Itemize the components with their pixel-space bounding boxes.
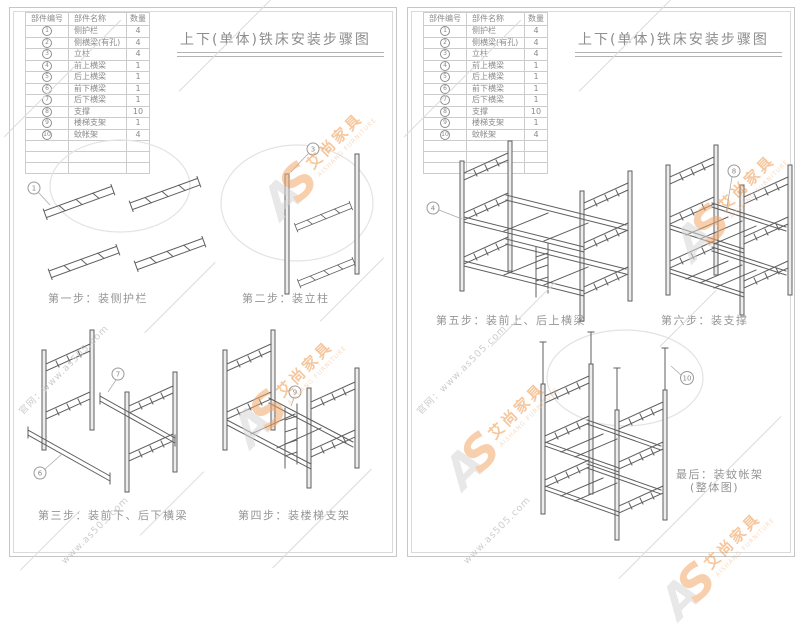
caption-final-line2: (整体图)	[690, 479, 739, 495]
part-qty: 4	[525, 49, 548, 61]
part-qty: 1	[127, 118, 150, 130]
sheet-left: 部件编号 部件名称 数量 1 侧护栏 4 2 侧横梁(有孔) 4 3 立柱 4 …	[9, 7, 397, 557]
part-qty: 1	[127, 72, 150, 84]
part-no: 1	[424, 26, 467, 38]
diagram-final-net-frame: 10	[513, 326, 705, 538]
part-name: 侧护栏	[69, 26, 127, 38]
part-qty: 4	[127, 129, 150, 141]
diagram-step5-upper-beams: 4	[418, 151, 656, 317]
part-qty: 10	[525, 106, 548, 118]
svg-text:3: 3	[311, 146, 315, 154]
part-qty: 4	[525, 129, 548, 141]
caption-step2: 第二步：装立柱	[242, 290, 330, 306]
table-row: 7 后下横梁 1	[26, 95, 150, 107]
callout-step6: 8	[726, 165, 740, 213]
part-name: 后下横梁	[467, 95, 525, 107]
caption-step3: 第三步：装前下、后下横梁	[38, 507, 188, 523]
caption-step6: 第六步：装支撑	[661, 312, 749, 328]
svg-text:9: 9	[293, 389, 297, 397]
caption-step1: 第一步：装侧护栏	[48, 290, 148, 306]
table-row: 9 楼梯支架 1	[424, 118, 548, 130]
part-qty: 1	[525, 83, 548, 95]
title-underline	[575, 52, 782, 57]
table-row: 3 立柱 4	[26, 49, 150, 61]
part-name: 侧横梁(有孔)	[467, 37, 525, 49]
part-no: 4	[424, 60, 467, 72]
table-row: 8 支撑 10	[26, 106, 150, 118]
part-qty: 4	[127, 49, 150, 61]
table-row: 7 后下横梁 1	[424, 95, 548, 107]
part-name: 支撑	[467, 106, 525, 118]
parts-header-name: 部件名称	[467, 13, 525, 26]
table-row: 8 支撑 10	[424, 106, 548, 118]
callout-step5: 4	[427, 202, 462, 219]
part-qty: 1	[525, 95, 548, 107]
part-name: 侧横梁(有孔)	[69, 37, 127, 49]
part-no: 2	[26, 37, 69, 49]
table-row: 2 侧横梁(有孔) 4	[424, 37, 548, 49]
callout-step4: 9	[289, 386, 301, 406]
diagram-step4-ladder: 9	[215, 328, 397, 506]
callout-step3-front: 6	[34, 454, 62, 479]
table-row: 9 楼梯支架 1	[26, 118, 150, 130]
table-row: 10 蚊帐架 4	[26, 129, 150, 141]
table-row: 10 蚊帐架 4	[424, 129, 548, 141]
part-no: 3	[26, 49, 69, 61]
part-name: 后上横梁	[69, 72, 127, 84]
page-title: 上下(单体)铁床安装步骤图	[578, 29, 788, 49]
parts-header-no: 部件编号	[424, 13, 467, 26]
part-no: 5	[424, 72, 467, 84]
svg-text:6: 6	[38, 470, 43, 478]
part-name: 前上横梁	[467, 60, 525, 72]
table-row: 1 侧护栏 4	[26, 26, 150, 38]
caption-step4: 第四步：装楼梯支架	[238, 507, 351, 523]
part-no: 2	[424, 37, 467, 49]
part-name: 楼梯支架	[69, 118, 127, 130]
part-name: 立柱	[467, 49, 525, 61]
part-name: 支撑	[69, 106, 127, 118]
diagram-step3-lower-beams: 7 6	[20, 328, 215, 506]
parts-header-name: 部件名称	[69, 13, 127, 26]
part-name: 后下横梁	[69, 95, 127, 107]
table-row: 6 前下横梁 1	[26, 83, 150, 95]
part-qty: 1	[525, 72, 548, 84]
caption-step5: 第五步：装前上、后上横梁	[436, 312, 586, 328]
svg-text:10: 10	[683, 375, 692, 383]
assembly-instruction-sheet: { "document": { "title": "上下(单体)铁床安装步骤图"…	[0, 0, 800, 566]
table-row: 6 前下横梁 1	[424, 83, 548, 95]
part-name: 立柱	[69, 49, 127, 61]
svg-text:8: 8	[732, 168, 736, 176]
part-qty: 4	[525, 26, 548, 38]
part-name: 前上横梁	[69, 60, 127, 72]
table-row: 2 侧横梁(有孔) 4	[26, 37, 150, 49]
diagram-step2-posts: 3	[215, 141, 395, 308]
table-row: 5 后上横梁 1	[26, 72, 150, 84]
part-no: 4	[26, 60, 69, 72]
part-no: 7	[424, 95, 467, 107]
part-no: 9	[26, 118, 69, 130]
parts-header-qty: 数量	[525, 13, 548, 26]
part-qty: 4	[127, 37, 150, 49]
title-underline	[177, 52, 384, 57]
sheet-right: 部件编号 部件名称 数量 1 侧护栏 4 2 侧横梁(有孔) 4 3 立柱 4 …	[407, 7, 795, 557]
table-row: 4 前上横梁 1	[26, 60, 150, 72]
part-name: 蚊帐架	[467, 129, 525, 141]
part-name: 前下横梁	[467, 83, 525, 95]
part-qty: 1	[127, 95, 150, 107]
part-qty: 1	[525, 60, 548, 72]
table-row-empty	[424, 141, 548, 152]
table-row: 3 立柱 4	[424, 49, 548, 61]
part-qty: 1	[127, 83, 150, 95]
part-name: 蚊帐架	[69, 129, 127, 141]
part-name: 后上横梁	[467, 72, 525, 84]
part-name: 前下横梁	[69, 83, 127, 95]
part-qty: 10	[127, 106, 150, 118]
part-no: 8	[424, 106, 467, 118]
callout-step2: 3	[291, 143, 319, 172]
part-qty: 1	[127, 60, 150, 72]
part-no: 1	[26, 26, 69, 38]
table-row: 1 侧护栏 4	[424, 26, 548, 38]
page-title: 上下(单体)铁床安装步骤图	[180, 29, 390, 49]
part-no: 10	[424, 129, 467, 141]
callout-final: 10	[671, 366, 694, 385]
part-name: 侧护栏	[467, 26, 525, 38]
part-name: 楼梯支架	[467, 118, 525, 130]
diagram-step6-supports: 8	[656, 151, 794, 317]
diagram-step1-side-guardrails: 1	[20, 141, 215, 308]
svg-text:7: 7	[116, 371, 120, 379]
svg-text:4: 4	[431, 205, 436, 213]
part-no: 10	[26, 129, 69, 141]
svg-text:1: 1	[32, 185, 36, 193]
part-qty: 4	[525, 37, 548, 49]
parts-header-qty: 数量	[127, 13, 150, 26]
part-no: 3	[424, 49, 467, 61]
table-row: 5 后上横梁 1	[424, 72, 548, 84]
part-qty: 4	[127, 26, 150, 38]
part-no: 6	[424, 83, 467, 95]
callout-step3-rear: 7	[108, 368, 124, 392]
table-row: 4 前上横梁 1	[424, 60, 548, 72]
part-no: 6	[26, 83, 69, 95]
part-no: 5	[26, 72, 69, 84]
parts-table: 部件编号 部件名称 数量 1 侧护栏 4 2 侧横梁(有孔) 4 3 立柱 4 …	[423, 12, 548, 174]
part-no: 8	[26, 106, 69, 118]
as-monogram-icon: AS	[649, 559, 719, 629]
part-no: 7	[26, 95, 69, 107]
part-qty: 1	[525, 118, 548, 130]
part-no: 9	[424, 118, 467, 130]
parts-header-no: 部件编号	[26, 13, 69, 26]
callout-step1: 1	[28, 182, 50, 205]
